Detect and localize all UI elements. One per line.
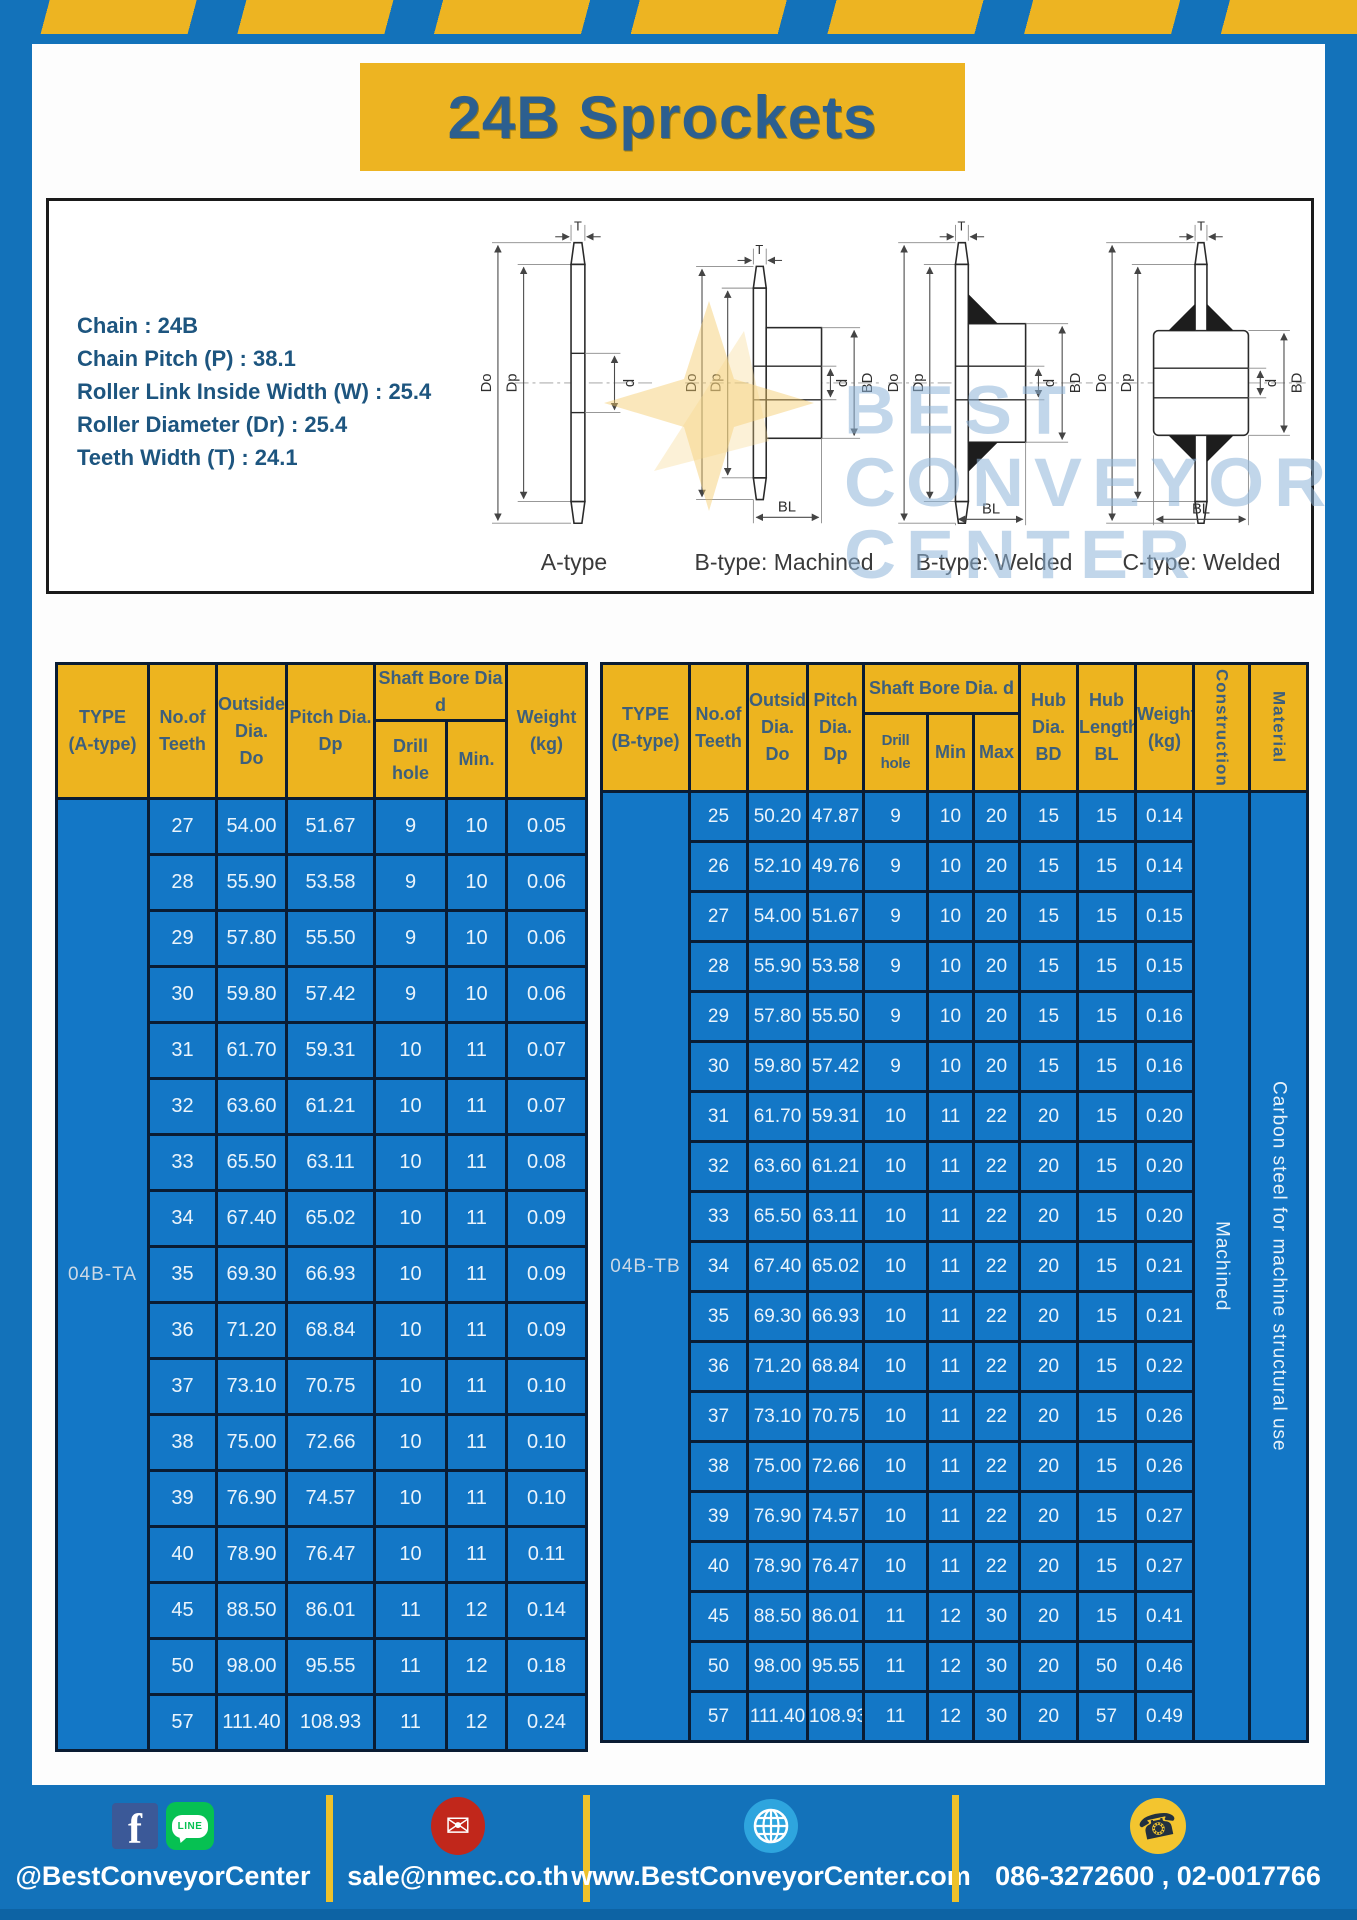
table-cell: 70.75: [287, 1359, 375, 1415]
table-cell: 39: [690, 1492, 748, 1542]
table-cell: 39: [149, 1471, 217, 1527]
header-drill-hole: Drill hole: [864, 714, 928, 792]
table-cell: 11: [928, 1542, 974, 1592]
page: 24B Sprockets Chain : 24B Chain Pitch (P…: [0, 0, 1357, 1920]
table-cell: 35: [149, 1247, 217, 1303]
table-cell: 76.47: [287, 1527, 375, 1583]
table-cell: 71.20: [217, 1303, 287, 1359]
page-title: 24B Sprockets: [448, 83, 878, 152]
header-min: Min: [928, 714, 974, 792]
table-cell: 86.01: [808, 1592, 864, 1642]
table-cell: 11: [928, 1092, 974, 1142]
table-cell: 20: [1020, 1192, 1078, 1242]
table-cell: 37: [690, 1392, 748, 1442]
table-cell: 10: [447, 855, 507, 911]
table-cell: 11: [928, 1392, 974, 1442]
material-cell: Carbon steel for machine structural use: [1250, 792, 1308, 1742]
spec-pitch: Chain Pitch (P) : 38.1: [77, 342, 431, 375]
table-cell: 20: [1020, 1492, 1078, 1542]
table-cell: 11: [375, 1695, 447, 1751]
a-type-drawing: Do Dp T d: [459, 217, 689, 543]
table-cell: 15: [1078, 1392, 1136, 1442]
table-cell: 9: [864, 892, 928, 942]
table-cell: 0.14: [507, 1583, 587, 1639]
svg-text:Dp: Dp: [911, 374, 927, 393]
table-cell: 10: [375, 1079, 447, 1135]
table-cell: 86.01: [287, 1583, 375, 1639]
table-cell: 88.50: [217, 1583, 287, 1639]
table-cell: 15: [1020, 892, 1078, 942]
table-cell: 74.57: [287, 1471, 375, 1527]
table-cell: 0.27: [1136, 1492, 1194, 1542]
footer-website-section: www.BestConveyorCenter.com: [590, 1785, 952, 1920]
table-cell: 12: [928, 1592, 974, 1642]
table-cell: 65.02: [808, 1242, 864, 1292]
footer-divider: [326, 1795, 333, 1902]
table-cell: 0.09: [507, 1303, 587, 1359]
table-cell: 51.67: [808, 892, 864, 942]
table-cell: 69.30: [217, 1247, 287, 1303]
table-cell: 75.00: [748, 1442, 808, 1492]
table-cell: 50: [1078, 1642, 1136, 1692]
table-cell: 15: [1078, 1092, 1136, 1142]
table-cell: 55.90: [748, 942, 808, 992]
table-cell: 37: [149, 1359, 217, 1415]
table-cell: 0.09: [507, 1247, 587, 1303]
spec-roller-width: Roller Link Inside Width (W) : 25.4: [77, 375, 431, 408]
table-cell: 57.42: [287, 967, 375, 1023]
table-cell: 10: [928, 992, 974, 1042]
table-cell: 65.50: [748, 1192, 808, 1242]
table-cell: 0.06: [507, 967, 587, 1023]
table-cell: 22: [974, 1342, 1020, 1392]
table-cell: 108.93: [287, 1695, 375, 1751]
table-cell: 47.87: [808, 792, 864, 842]
table-cell: 15: [1078, 1592, 1136, 1642]
table-cell: 22: [974, 1142, 1020, 1192]
footer-social-section: f LINE @BestConveyorCenter: [0, 1785, 326, 1920]
table-cell: 15: [1078, 1542, 1136, 1592]
table-cell: 34: [690, 1242, 748, 1292]
table-cell: 33: [149, 1135, 217, 1191]
table-cell: 10: [928, 792, 974, 842]
table-cell: 57.80: [217, 911, 287, 967]
table-cell: 11: [864, 1642, 928, 1692]
table-cell: 61.21: [287, 1079, 375, 1135]
table-cell: 15: [1020, 1042, 1078, 1092]
table-cell: 11: [375, 1639, 447, 1695]
table-cell: 15: [1078, 1342, 1136, 1392]
table-cell: 59.31: [808, 1092, 864, 1142]
table-cell: 15: [1020, 942, 1078, 992]
line-icon-label: LINE: [178, 1821, 203, 1832]
svg-text:d: d: [835, 379, 851, 387]
table-cell: 88.50: [748, 1592, 808, 1642]
spec-roller-diameter: Roller Diameter (Dr) : 25.4: [77, 408, 431, 441]
table-cell: 10: [928, 1042, 974, 1092]
table-cell: 11: [447, 1247, 507, 1303]
table-cell: 20: [1020, 1292, 1078, 1342]
table-cell: 0.41: [1136, 1592, 1194, 1642]
table-cell: 40: [149, 1527, 217, 1583]
table-cell: 57: [149, 1695, 217, 1751]
svg-text:d: d: [1264, 379, 1280, 387]
table-cell: 98.00: [748, 1642, 808, 1692]
table-cell: 11: [447, 1135, 507, 1191]
table-cell: 0.16: [1136, 992, 1194, 1042]
table-cell: 0.14: [1136, 792, 1194, 842]
header-teeth: No.of Teeth: [149, 664, 217, 799]
table-cell: 69.30: [748, 1292, 808, 1342]
table-row: 04B-TA2754.0051.679100.05: [57, 799, 587, 855]
table-cell: 20: [974, 792, 1020, 842]
table-cell: 57.42: [808, 1042, 864, 1092]
table-cell: 15: [1078, 992, 1136, 1042]
table-cell: 9: [864, 992, 928, 1042]
table-cell: 34: [149, 1191, 217, 1247]
header-drill-hole: Drill hole: [375, 721, 447, 799]
table-cell: 10: [864, 1092, 928, 1142]
table-cell: 28: [690, 942, 748, 992]
table-cell: 22: [974, 1192, 1020, 1242]
table-cell: 76.90: [217, 1471, 287, 1527]
table-cell: 11: [864, 1592, 928, 1642]
table-cell: 59.80: [217, 967, 287, 1023]
table-cell: 76.90: [748, 1492, 808, 1542]
table-cell: 10: [864, 1442, 928, 1492]
b-type-machined-drawing: Do Dp T d BD: [669, 217, 899, 543]
svg-text:Do: Do: [684, 374, 700, 393]
table-cell: 10: [928, 892, 974, 942]
table-cell: 50: [690, 1642, 748, 1692]
table-cell: 68.84: [808, 1342, 864, 1392]
svg-text:BL: BL: [982, 501, 1000, 517]
table-cell: 11: [928, 1492, 974, 1542]
table-cell: 0.14: [1136, 842, 1194, 892]
table-cell: 9: [864, 842, 928, 892]
table-cell: 98.00: [217, 1639, 287, 1695]
table-cell: 0.46: [1136, 1642, 1194, 1692]
table-cell: 78.90: [748, 1542, 808, 1592]
svg-text:T: T: [957, 218, 965, 233]
table-cell: 0.10: [507, 1471, 587, 1527]
table-cell: 20: [1020, 1592, 1078, 1642]
table-cell: 20: [974, 1042, 1020, 1092]
header-shaft-bore: Shaft Bore Dia. d: [864, 664, 1020, 714]
diagram-caption-c-welded: C-type: Welded: [1089, 549, 1314, 576]
footer-divider: [952, 1795, 959, 1902]
table-cell: 22: [974, 1542, 1020, 1592]
table-cell: 38: [690, 1442, 748, 1492]
table-cell: 10: [375, 1415, 447, 1471]
header-min: Min.: [447, 721, 507, 799]
table-cell: 10: [928, 942, 974, 992]
table-cell: 95.55: [808, 1642, 864, 1692]
table-cell: 20: [1020, 1342, 1078, 1392]
table-cell: 29: [690, 992, 748, 1042]
table-cell: 57.80: [748, 992, 808, 1042]
header-type-a: TYPE (A-type): [57, 664, 149, 799]
table-cell: 36: [149, 1303, 217, 1359]
table-cell: 10: [928, 842, 974, 892]
table-cell: 55.90: [217, 855, 287, 911]
title-banner: 24B Sprockets: [360, 63, 965, 171]
table-cell: 32: [149, 1079, 217, 1135]
footer-bottom-strip: [0, 1909, 1357, 1920]
table-row: 04B-TB2550.2047.879102015150.14MachinedC…: [602, 792, 1308, 842]
footer-social-handle: @BestConveyorCenter: [16, 1861, 311, 1892]
table-cell: 10: [447, 911, 507, 967]
svg-text:d: d: [622, 379, 638, 387]
table-cell: 0.07: [507, 1079, 587, 1135]
table-cell: 0.10: [507, 1415, 587, 1471]
svg-text:Do: Do: [886, 374, 902, 393]
table-cell: 15: [1078, 792, 1136, 842]
table-cell: 0.26: [1136, 1392, 1194, 1442]
table-cell: 15: [1020, 792, 1078, 842]
table-cell: 55.50: [808, 992, 864, 1042]
table-cell: 15: [1078, 1292, 1136, 1342]
table-cell: 15: [1078, 1492, 1136, 1542]
table-cell: 12: [928, 1692, 974, 1742]
type-cell: 04B-TA: [57, 799, 149, 1751]
svg-text:BL: BL: [1192, 501, 1210, 517]
svg-text:T: T: [755, 242, 763, 257]
header-outside-dia: Outside Dia. Do: [217, 664, 287, 799]
table-cell: 0.15: [1136, 892, 1194, 942]
table-cell: 29: [149, 911, 217, 967]
table-cell: 32: [690, 1142, 748, 1192]
table-cell: 111.40: [748, 1692, 808, 1742]
table-cell: 30: [974, 1592, 1020, 1642]
table-cell: 11: [447, 1471, 507, 1527]
spec-teeth-width: Teeth Width (T) : 24.1: [77, 441, 431, 474]
table-cell: 10: [375, 1191, 447, 1247]
table-b-type: TYPE (B-type) No.of Teeth Outside Dia. D…: [600, 662, 1309, 1743]
left-frame: [0, 44, 32, 1920]
table-cell: 61.70: [748, 1092, 808, 1142]
svg-text:BL: BL: [778, 499, 796, 515]
table-cell: 20: [1020, 1392, 1078, 1442]
table-cell: 25: [690, 792, 748, 842]
table-cell: 51.67: [287, 799, 375, 855]
facebook-icon: f: [112, 1803, 158, 1849]
table-cell: 54.00: [748, 892, 808, 942]
svg-text:Dp: Dp: [505, 374, 521, 393]
table-cell: 0.16: [1136, 1042, 1194, 1092]
table-cell: 20: [1020, 1442, 1078, 1492]
svg-text:Dp: Dp: [1119, 374, 1135, 393]
table-cell: 9: [375, 799, 447, 855]
table-cell: 53.58: [808, 942, 864, 992]
table-cell: 67.40: [748, 1242, 808, 1292]
b-type-welded-drawing: Do Dp T d BD: [879, 217, 1109, 543]
table-cell: 71.20: [748, 1342, 808, 1392]
table-cell: 15: [1078, 1242, 1136, 1292]
table-cell: 0.20: [1136, 1192, 1194, 1242]
table-cell: 95.55: [287, 1639, 375, 1695]
table-cell: 15: [1020, 992, 1078, 1042]
table-cell: 20: [974, 892, 1020, 942]
diagram-panel: Chain : 24B Chain Pitch (P) : 38.1 Rolle…: [46, 198, 1314, 594]
table-cell: 49.76: [808, 842, 864, 892]
table-cell: 31: [149, 1023, 217, 1079]
footer-phone: 086-3272600 , 02-0017766: [995, 1861, 1321, 1892]
table-cell: 0.06: [507, 911, 587, 967]
table-cell: 0.27: [1136, 1542, 1194, 1592]
table-cell: 10: [375, 1023, 447, 1079]
footer-phone-section: ☎ 086-3272600 , 02-0017766: [959, 1785, 1357, 1920]
table-cell: 10: [864, 1142, 928, 1192]
table-cell: 10: [864, 1392, 928, 1442]
diagram-caption-a: A-type: [459, 549, 689, 576]
table-cell: 20: [1020, 1692, 1078, 1742]
table-cell: 20: [1020, 1542, 1078, 1592]
table-cell: 11: [928, 1442, 974, 1492]
table-cell: 75.00: [217, 1415, 287, 1471]
table-cell: 11: [928, 1142, 974, 1192]
table-cell: 12: [447, 1695, 507, 1751]
table-cell: 10: [375, 1359, 447, 1415]
header-hub-dia: Hub Dia. BD: [1020, 664, 1078, 792]
table-cell: 10: [864, 1342, 928, 1392]
table-cell: 15: [1020, 842, 1078, 892]
svg-text:BD: BD: [1290, 373, 1306, 394]
table-cell: 15: [1078, 1192, 1136, 1242]
table-cell: 11: [447, 1527, 507, 1583]
table-cell: 9: [864, 792, 928, 842]
table-cell: 53.58: [287, 855, 375, 911]
table-cell: 27: [149, 799, 217, 855]
chain-specs: Chain : 24B Chain Pitch (P) : 38.1 Rolle…: [77, 309, 431, 474]
diagram-caption-b-welded: B-type: Welded: [879, 549, 1109, 576]
table-cell: 45: [690, 1592, 748, 1642]
table-cell: 11: [447, 1415, 507, 1471]
table-cell: 0.22: [1136, 1342, 1194, 1392]
table-cell: 10: [375, 1303, 447, 1359]
table-cell: 0.24: [507, 1695, 587, 1751]
table-cell: 45: [149, 1583, 217, 1639]
table-cell: 10: [375, 1135, 447, 1191]
table-cell: 9: [375, 967, 447, 1023]
table-cell: 9: [375, 911, 447, 967]
table-cell: 65.02: [287, 1191, 375, 1247]
table-cell: 0.26: [1136, 1442, 1194, 1492]
header-construction: Construction: [1194, 664, 1250, 792]
table-cell: 61.70: [217, 1023, 287, 1079]
table-cell: 15: [1078, 1142, 1136, 1192]
table-cell: 70.75: [808, 1392, 864, 1442]
table-cell: 55.50: [287, 911, 375, 967]
table-cell: 59.80: [748, 1042, 808, 1092]
table-cell: 73.10: [217, 1359, 287, 1415]
header-outside-dia: Outside Dia. Do: [748, 664, 808, 792]
table-cell: 57: [1078, 1692, 1136, 1742]
table-cell: 15: [1078, 892, 1136, 942]
table-cell: 10: [375, 1527, 447, 1583]
table-cell: 30: [149, 967, 217, 1023]
hazard-stripes: [0, 0, 1357, 34]
table-cell: 65.50: [217, 1135, 287, 1191]
table-cell: 15: [1078, 842, 1136, 892]
table-cell: 68.84: [287, 1303, 375, 1359]
c-type-welded-drawing: Do Dp T d: [1089, 217, 1314, 543]
table-cell: 0.20: [1136, 1092, 1194, 1142]
table-cell: 11: [928, 1192, 974, 1242]
svg-text:BD: BD: [1068, 373, 1084, 394]
header-pitch-dia: Pitch Dia. Dp: [808, 664, 864, 792]
table-cell: 35: [690, 1292, 748, 1342]
table-cell: 10: [864, 1292, 928, 1342]
table-cell: 76.47: [808, 1542, 864, 1592]
table-cell: 0.15: [1136, 942, 1194, 992]
table-cell: 0.07: [507, 1023, 587, 1079]
header-pitch-dia: Pitch Dia. Dp: [287, 664, 375, 799]
footer: f LINE @BestConveyorCenter ✉ sale@nmec.c…: [0, 1785, 1357, 1920]
table-cell: 38: [149, 1415, 217, 1471]
table-cell: 22: [974, 1392, 1020, 1442]
table-cell: 63.11: [287, 1135, 375, 1191]
table-cell: 0.21: [1136, 1292, 1194, 1342]
table-cell: 72.66: [808, 1442, 864, 1492]
table-cell: 30: [974, 1642, 1020, 1692]
table-cell: 20: [1020, 1142, 1078, 1192]
table-cell: 63.60: [217, 1079, 287, 1135]
svg-text:Dp: Dp: [709, 374, 725, 393]
table-cell: 10: [375, 1247, 447, 1303]
table-cell: 11: [864, 1692, 928, 1742]
footer-email-section: ✉ sale@nmec.co.th: [333, 1785, 583, 1920]
header-shaft-bore: Shaft Bore Dia d: [375, 664, 507, 721]
table-cell: 78.90: [217, 1527, 287, 1583]
table-a-type: TYPE (A-type) No.of Teeth Outside Dia. D…: [55, 662, 588, 1752]
table-cell: 0.11: [507, 1527, 587, 1583]
table-cell: 27: [690, 892, 748, 942]
table-cell: 30: [690, 1042, 748, 1092]
table-cell: 9: [864, 942, 928, 992]
table-cell: 11: [928, 1342, 974, 1392]
top-hazard-bar: [0, 0, 1357, 44]
table-cell: 22: [974, 1442, 1020, 1492]
table-cell: 108.93: [808, 1692, 864, 1742]
table-cell: 20: [974, 942, 1020, 992]
table-cell: 20: [1020, 1092, 1078, 1142]
table-cell: 50: [149, 1639, 217, 1695]
table-cell: 11: [447, 1191, 507, 1247]
table-cell: 11: [375, 1583, 447, 1639]
table-cell: 20: [1020, 1642, 1078, 1692]
table-cell: 111.40: [217, 1695, 287, 1751]
phone-icon: ☎: [1130, 1798, 1186, 1854]
table-cell: 10: [375, 1471, 447, 1527]
table-cell: 15: [1078, 942, 1136, 992]
footer-website: www.BestConveyorCenter.com: [571, 1861, 971, 1892]
table-cell: 12: [447, 1583, 507, 1639]
table-cell: 10: [864, 1492, 928, 1542]
table-cell: 10: [864, 1242, 928, 1292]
table-cell: 57: [690, 1692, 748, 1742]
table-cell: 12: [447, 1639, 507, 1695]
table-cell: 73.10: [748, 1392, 808, 1442]
table-cell: 74.57: [808, 1492, 864, 1542]
table-cell: 9: [375, 855, 447, 911]
table-cell: 11: [447, 1023, 507, 1079]
svg-text:T: T: [574, 218, 582, 233]
table-cell: 11: [447, 1079, 507, 1135]
line-icon: LINE: [166, 1802, 214, 1850]
table-cell: 10: [447, 967, 507, 1023]
construction-cell: Machined: [1194, 792, 1250, 1742]
